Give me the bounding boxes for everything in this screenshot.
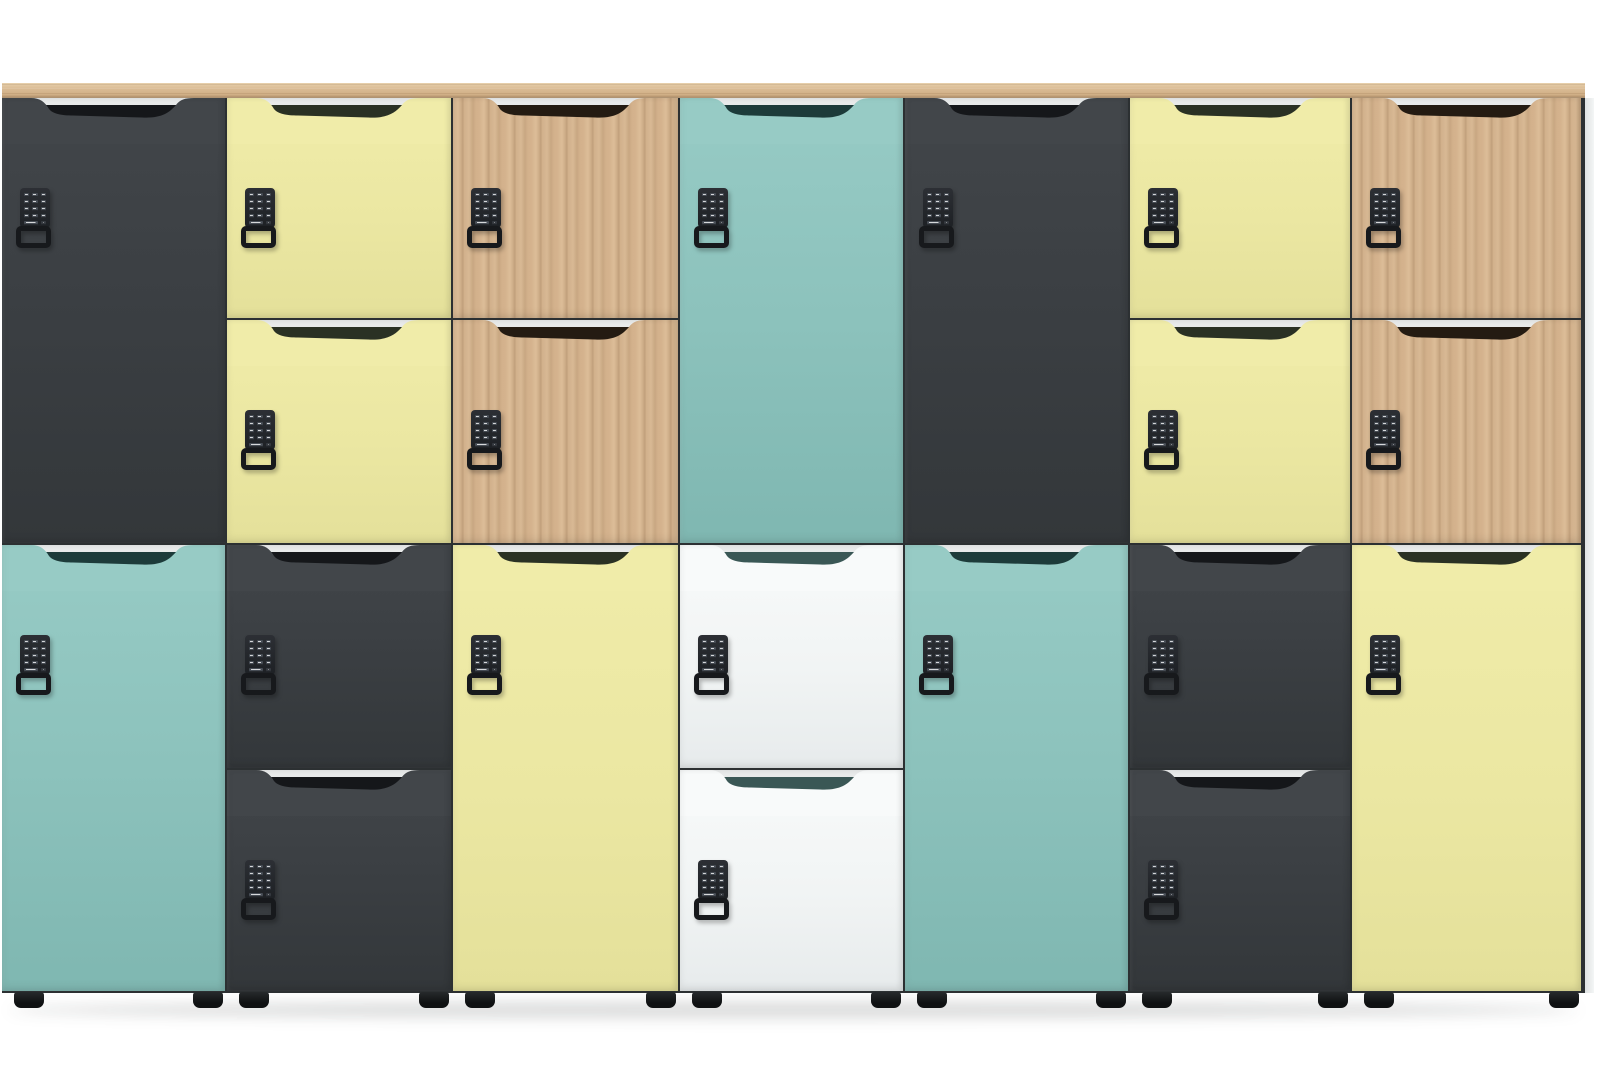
keypad-key <box>1169 879 1174 883</box>
keypad-key <box>32 193 37 197</box>
keypad-indicator <box>1169 668 1174 672</box>
keypad-function-key <box>475 668 489 672</box>
keypad-key <box>944 647 949 651</box>
keypad-indicator <box>266 221 271 225</box>
keypad-lock <box>923 188 955 248</box>
door-grip-cutout <box>1352 545 1581 591</box>
keypad-key <box>1382 415 1387 419</box>
keypad-key <box>483 640 488 644</box>
keypad-key <box>41 640 46 644</box>
keypad-key <box>249 865 254 869</box>
keypad-key <box>1152 214 1157 218</box>
keypad-key <box>483 214 488 218</box>
keypad-key <box>249 200 254 204</box>
keypad-indicator <box>1169 221 1174 225</box>
keypad-key <box>492 422 497 426</box>
keypad-key <box>935 193 940 197</box>
locker-foot <box>692 992 722 1008</box>
keypad-latch-handle <box>694 226 729 248</box>
keypad-key <box>1382 207 1387 211</box>
keypad-key <box>944 193 949 197</box>
keypad-key <box>1152 207 1157 211</box>
keypad-key <box>475 640 480 644</box>
keypad-key <box>24 661 29 665</box>
keypad-key <box>927 661 932 665</box>
door-grip-cutout <box>453 545 678 591</box>
keypad-key <box>249 429 254 433</box>
keypad-key <box>1152 415 1157 419</box>
keypad-latch-handle <box>1366 448 1401 470</box>
keypad-key <box>719 879 724 883</box>
door-grip-cutout <box>1130 98 1350 144</box>
keypad-lock <box>1370 635 1402 695</box>
keypad-key <box>710 193 715 197</box>
keypad-key <box>719 647 724 651</box>
keypad-latch-handle <box>919 673 954 695</box>
keypad-function-key <box>1152 668 1166 672</box>
keypad-key <box>41 214 46 218</box>
keypad-key <box>266 654 271 658</box>
keypad-key <box>257 436 262 440</box>
keypad-key <box>492 415 497 419</box>
keypad-key <box>1169 207 1174 211</box>
keypad-key <box>1169 886 1174 890</box>
keypad-buttons <box>1148 635 1178 675</box>
keypad-buttons <box>698 635 728 675</box>
keypad-key <box>257 647 262 651</box>
keypad-key <box>1160 865 1165 869</box>
keypad-latch-handle <box>1144 898 1179 920</box>
keypad-key <box>935 207 940 211</box>
keypad-indicator <box>1391 221 1396 225</box>
keypad-buttons <box>698 188 728 228</box>
locker-cabinet <box>2 83 1585 1009</box>
keypad-key <box>257 872 262 876</box>
locker-unit-3 <box>453 98 680 993</box>
keypad-latch-handle <box>694 673 729 695</box>
keypad-key <box>266 207 271 211</box>
keypad-key <box>483 422 488 426</box>
keypad-key <box>492 200 497 204</box>
keypad-key <box>1382 640 1387 644</box>
keypad-key <box>1374 422 1379 426</box>
keypad-key <box>32 214 37 218</box>
keypad-indicator <box>1391 443 1396 447</box>
keypad-key <box>935 200 940 204</box>
keypad-key <box>1160 872 1165 876</box>
keypad-key <box>483 415 488 419</box>
locker-door-charcoal <box>227 770 451 991</box>
door-grip-cutout <box>227 545 451 591</box>
keypad-function-key <box>249 893 263 897</box>
keypad-key <box>1160 654 1165 658</box>
keypad-key <box>257 429 262 433</box>
keypad-key <box>1391 207 1396 211</box>
keypad-key <box>1160 214 1165 218</box>
keypad-key <box>1391 647 1396 651</box>
keypad-key <box>927 193 932 197</box>
keypad-latch-handle <box>241 226 276 248</box>
keypad-key <box>1152 654 1157 658</box>
door-grip-cutout <box>905 98 1128 144</box>
keypad-key <box>266 879 271 883</box>
locker-unit-7 <box>1352 98 1583 993</box>
keypad-function-key <box>24 221 38 225</box>
keypad-key <box>927 200 932 204</box>
keypad-key <box>702 872 707 876</box>
keypad-key <box>249 654 254 658</box>
keypad-key <box>1391 654 1396 658</box>
locker-foot <box>871 992 901 1008</box>
keypad-key <box>1374 436 1379 440</box>
keypad-key <box>710 200 715 204</box>
keypad-key <box>1152 865 1157 869</box>
keypad-key <box>41 193 46 197</box>
keypad-key <box>1382 193 1387 197</box>
keypad-key <box>927 214 932 218</box>
keypad-latch-handle <box>467 226 502 248</box>
keypad-function-key <box>702 668 716 672</box>
keypad-key <box>719 661 724 665</box>
keypad-key <box>1160 886 1165 890</box>
keypad-key <box>1169 865 1174 869</box>
keypad-key <box>1152 429 1157 433</box>
keypad-key <box>702 214 707 218</box>
keypad-key <box>710 640 715 644</box>
keypad-key <box>719 214 724 218</box>
keypad-lock <box>1148 860 1180 920</box>
keypad-function-key <box>1152 443 1166 447</box>
keypad-key <box>710 661 715 665</box>
keypad-latch-handle <box>1144 226 1179 248</box>
keypad-key <box>927 654 932 658</box>
keypad-key <box>702 647 707 651</box>
keypad-key <box>24 214 29 218</box>
keypad-key <box>935 654 940 658</box>
keypad-key <box>702 865 707 869</box>
keypad-latch-handle <box>919 226 954 248</box>
door-grip-cutout <box>680 545 903 591</box>
keypad-key <box>1391 193 1396 197</box>
keypad-key <box>719 193 724 197</box>
door-grip-cutout <box>227 320 451 366</box>
keypad-key <box>41 654 46 658</box>
keypad-key <box>927 640 932 644</box>
keypad-indicator <box>266 893 271 897</box>
keypad-key <box>1160 415 1165 419</box>
keypad-function-key <box>1152 893 1166 897</box>
keypad-lock <box>245 410 277 470</box>
keypad-key <box>249 214 254 218</box>
keypad-key <box>1382 429 1387 433</box>
keypad-key <box>935 214 940 218</box>
keypad-key <box>710 886 715 890</box>
keypad-lock <box>245 635 277 695</box>
door-grip-cutout <box>453 320 678 366</box>
door-grip-cutout <box>227 770 451 816</box>
keypad-key <box>475 200 480 204</box>
keypad-key <box>1391 661 1396 665</box>
keypad-key <box>944 640 949 644</box>
locker-foot <box>1142 992 1172 1008</box>
keypad-key <box>257 214 262 218</box>
keypad-key <box>249 640 254 644</box>
locker-door-yellow <box>1130 320 1350 543</box>
keypad-key <box>1152 640 1157 644</box>
locker-foot <box>465 992 495 1008</box>
keypad-key <box>249 872 254 876</box>
keypad-key <box>719 200 724 204</box>
keypad-function-key <box>927 668 941 672</box>
keypad-key <box>1382 661 1387 665</box>
keypad-key <box>483 200 488 204</box>
keypad-key <box>492 661 497 665</box>
keypad-key <box>1169 661 1174 665</box>
keypad-key <box>32 647 37 651</box>
keypad-key <box>249 661 254 665</box>
keypad-key <box>483 193 488 197</box>
keypad-indicator <box>719 221 724 225</box>
keypad-key <box>1391 422 1396 426</box>
keypad-lock <box>471 410 503 470</box>
keypad-key <box>1391 415 1396 419</box>
keypad-buttons <box>245 410 275 450</box>
keypad-function-key <box>475 443 489 447</box>
keypad-key <box>266 214 271 218</box>
keypad-key <box>1160 429 1165 433</box>
keypad-key <box>32 200 37 204</box>
keypad-key <box>1374 661 1379 665</box>
keypad-key <box>257 200 262 204</box>
keypad-key <box>1160 436 1165 440</box>
door-shading <box>1352 545 1581 991</box>
keypad-key <box>1152 886 1157 890</box>
locker-foot <box>193 992 223 1008</box>
keypad-key <box>1152 200 1157 204</box>
keypad-latch-handle <box>1144 673 1179 695</box>
keypad-key <box>24 647 29 651</box>
keypad-key <box>702 200 707 204</box>
keypad-key <box>475 429 480 433</box>
keypad-key <box>492 429 497 433</box>
keypad-key <box>249 193 254 197</box>
keypad-buttons <box>1370 410 1400 450</box>
locker-door-oak <box>1352 320 1581 543</box>
keypad-key <box>702 640 707 644</box>
keypad-lock <box>245 860 277 920</box>
keypad-key <box>1169 422 1174 426</box>
keypad-key <box>1374 415 1379 419</box>
keypad-key <box>492 654 497 658</box>
keypad-function-key <box>1152 221 1166 225</box>
keypad-key <box>266 886 271 890</box>
keypad-buttons <box>1370 635 1400 675</box>
door-grid <box>2 98 1585 993</box>
locker-unit-4 <box>680 98 905 993</box>
keypad-key <box>24 207 29 211</box>
keypad-lock <box>471 188 503 248</box>
keypad-key <box>1169 436 1174 440</box>
keypad-key <box>24 193 29 197</box>
keypad-buttons <box>923 188 953 228</box>
keypad-indicator <box>944 221 949 225</box>
keypad-key <box>1391 429 1396 433</box>
keypad-key <box>1152 422 1157 426</box>
keypad-indicator <box>944 668 949 672</box>
keypad-key <box>1391 200 1396 204</box>
keypad-key <box>266 640 271 644</box>
keypad-latch-handle <box>16 673 51 695</box>
keypad-key <box>483 654 488 658</box>
door-grip-cutout <box>1352 98 1581 144</box>
door-shading <box>2 545 225 991</box>
keypad-latch-handle <box>1366 673 1401 695</box>
door-grip-cutout <box>1130 545 1350 591</box>
keypad-key <box>266 429 271 433</box>
keypad-key <box>710 207 715 211</box>
keypad-key <box>1169 872 1174 876</box>
locker-foot <box>419 992 449 1008</box>
locker-door-white <box>680 770 903 991</box>
keypad-indicator <box>1391 668 1396 672</box>
keypad-lock <box>1148 188 1180 248</box>
keypad-buttons <box>1148 188 1178 228</box>
keypad-key <box>927 647 932 651</box>
keypad-latch-handle <box>694 898 729 920</box>
keypad-key <box>266 415 271 419</box>
keypad-buttons <box>923 635 953 675</box>
keypad-key <box>1382 647 1387 651</box>
keypad-key <box>257 640 262 644</box>
keypad-key <box>475 193 480 197</box>
keypad-key <box>1152 879 1157 883</box>
keypad-lock <box>1148 410 1180 470</box>
door-grip-cutout <box>453 98 678 144</box>
keypad-key <box>257 207 262 211</box>
keypad-lock <box>471 635 503 695</box>
locker-door-yellow <box>453 545 678 991</box>
keypad-key <box>1391 214 1396 218</box>
keypad-key <box>266 865 271 869</box>
keypad-function-key <box>24 668 38 672</box>
door-shading <box>680 98 903 543</box>
keypad-buttons <box>20 188 50 228</box>
keypad-key <box>257 886 262 890</box>
keypad-key <box>1374 193 1379 197</box>
keypad-key <box>719 640 724 644</box>
keypad-key <box>249 207 254 211</box>
keypad-key <box>257 661 262 665</box>
keypad-key <box>249 436 254 440</box>
cabinet-side-panel-right <box>1585 98 1594 993</box>
keypad-key <box>32 640 37 644</box>
keypad-key <box>935 647 940 651</box>
keypad-key <box>32 207 37 211</box>
keypad-indicator <box>1169 443 1174 447</box>
keypad-buttons <box>1148 860 1178 900</box>
keypad-key <box>702 886 707 890</box>
locker-door-teal <box>2 545 225 991</box>
locker-unit-2 <box>227 98 453 993</box>
keypad-key <box>935 661 940 665</box>
keypad-key <box>927 207 932 211</box>
door-shading <box>453 545 678 991</box>
keypad-lock <box>20 188 52 248</box>
keypad-key <box>257 865 262 869</box>
keypad-key <box>249 647 254 651</box>
keypad-key <box>257 193 262 197</box>
keypad-buttons <box>20 635 50 675</box>
keypad-key <box>266 647 271 651</box>
keypad-key <box>719 207 724 211</box>
locker-door-oak <box>1352 98 1581 318</box>
keypad-lock <box>698 860 730 920</box>
keypad-key <box>492 207 497 211</box>
locker-unit-6 <box>1130 98 1352 993</box>
keypad-key <box>710 647 715 651</box>
keypad-indicator <box>492 668 497 672</box>
locker-door-charcoal <box>1130 770 1350 991</box>
keypad-key <box>719 872 724 876</box>
keypad-lock <box>923 635 955 695</box>
keypad-key <box>257 415 262 419</box>
locker-foot <box>1318 992 1348 1008</box>
keypad-key <box>1169 200 1174 204</box>
keypad-key <box>41 647 46 651</box>
keypad-key <box>492 193 497 197</box>
keypad-key <box>1152 661 1157 665</box>
keypad-buttons <box>698 860 728 900</box>
keypad-latch-handle <box>241 448 276 470</box>
keypad-lock <box>1370 410 1402 470</box>
keypad-key <box>475 647 480 651</box>
keypad-indicator <box>719 893 724 897</box>
keypad-indicator <box>41 668 46 672</box>
keypad-latch-handle <box>16 226 51 248</box>
keypad-buttons <box>471 635 501 675</box>
locker-door-charcoal <box>905 98 1128 543</box>
keypad-key <box>32 654 37 658</box>
keypad-key <box>1160 200 1165 204</box>
keypad-key <box>475 422 480 426</box>
door-grip-cutout <box>905 545 1128 591</box>
keypad-key <box>1374 207 1379 211</box>
door-grip-cutout <box>680 98 903 144</box>
keypad-buttons <box>245 860 275 900</box>
keypad-key <box>1169 640 1174 644</box>
cabinet-top-board <box>2 83 1585 98</box>
keypad-key <box>475 207 480 211</box>
keypad-latch-handle <box>467 448 502 470</box>
keypad-key <box>483 429 488 433</box>
keypad-key <box>702 654 707 658</box>
keypad-buttons <box>1370 188 1400 228</box>
keypad-function-key <box>1374 443 1388 447</box>
keypad-key <box>475 214 480 218</box>
keypad-key <box>266 661 271 665</box>
keypad-key <box>1374 214 1379 218</box>
keypad-buttons <box>245 188 275 228</box>
keypad-key <box>1160 193 1165 197</box>
keypad-key <box>1374 200 1379 204</box>
keypad-key <box>719 886 724 890</box>
keypad-key <box>1382 214 1387 218</box>
keypad-key <box>483 661 488 665</box>
locker-door-white <box>680 545 903 768</box>
keypad-key <box>32 661 37 665</box>
keypad-key <box>1160 647 1165 651</box>
locker-foot <box>646 992 676 1008</box>
